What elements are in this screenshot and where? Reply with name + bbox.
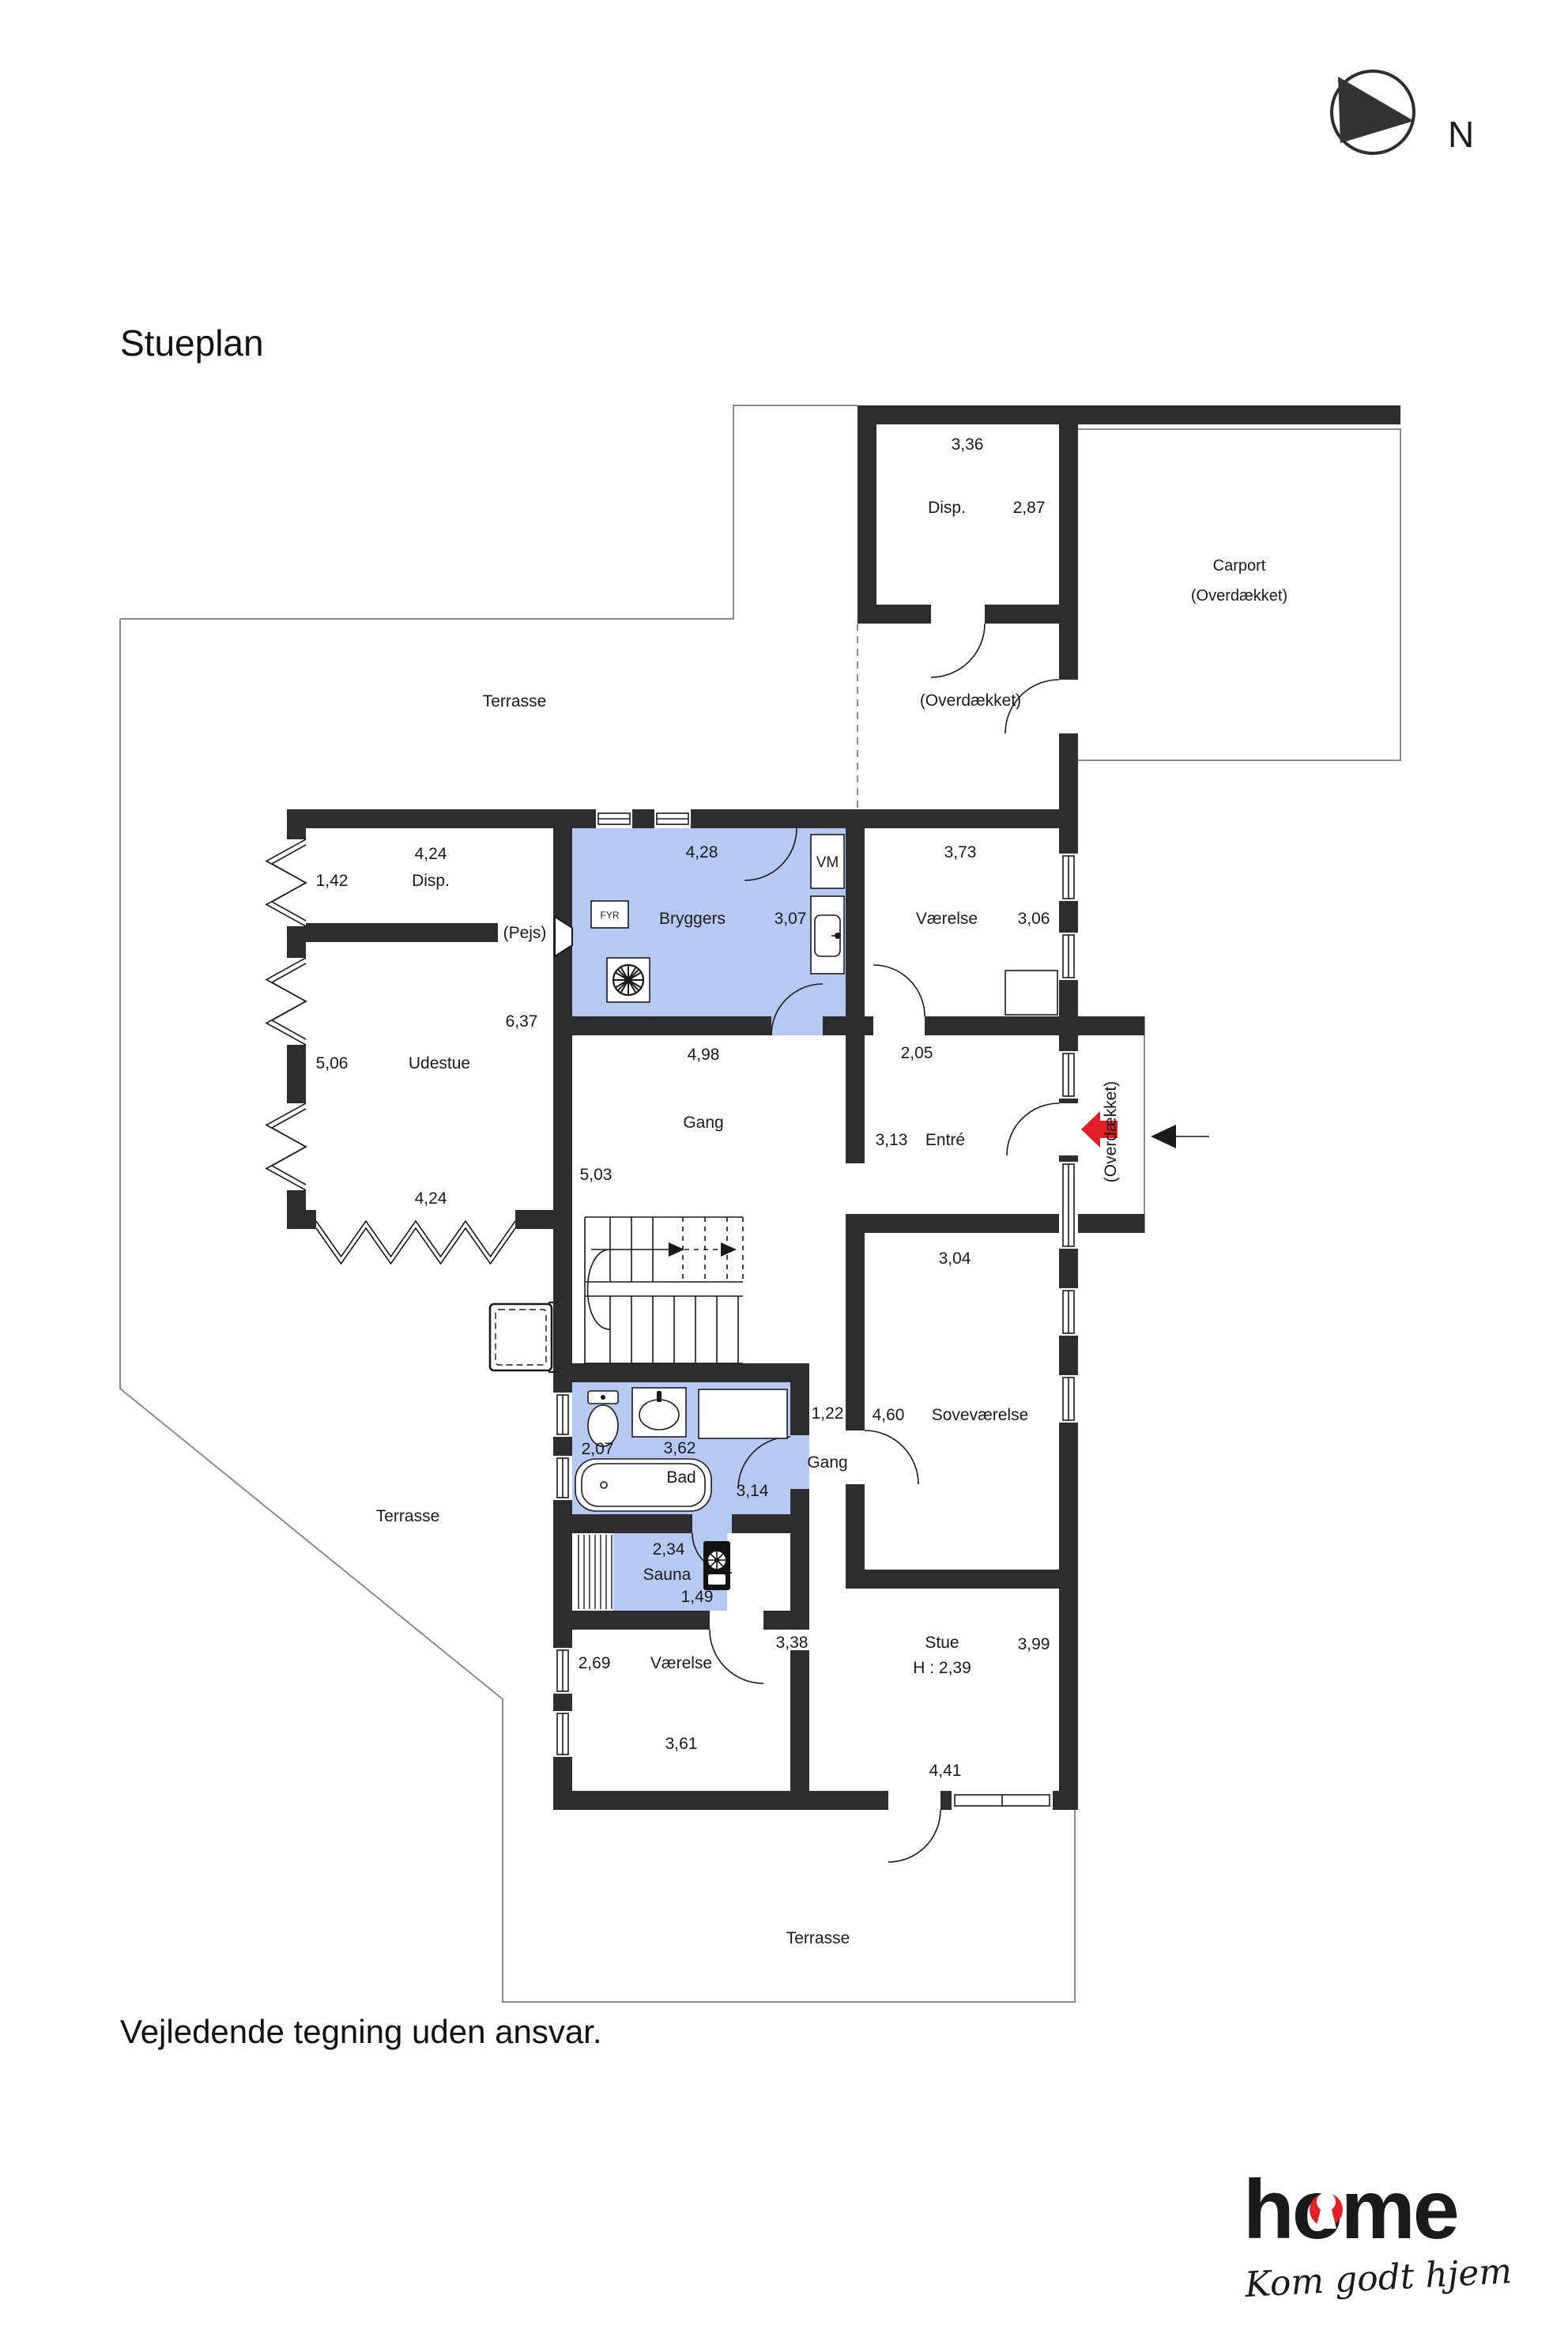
entre-width: 3,13 xyxy=(876,1131,908,1149)
door-arc xyxy=(873,965,925,1016)
window-icon xyxy=(1059,1288,1078,1336)
gang-depth: 5,03 xyxy=(580,1166,612,1184)
gang-width: 4,98 xyxy=(688,1046,720,1064)
sauna-door-fill xyxy=(692,1514,732,1533)
sauna-door-dim: 1,49 xyxy=(681,1588,714,1606)
furnace-icon: FYR xyxy=(591,901,628,928)
sovevaerelse-depth: 4,60 xyxy=(873,1406,905,1424)
vaerelse-bottom-width: 3,61 xyxy=(665,1735,698,1753)
compass-icon: N xyxy=(1332,71,1474,155)
terrace-outlines xyxy=(120,405,1400,2002)
disp-left-width: 4,24 xyxy=(415,845,447,863)
window-icon xyxy=(1059,1375,1078,1423)
accordion-window-icon xyxy=(272,1109,306,1185)
stue-width: 4,41 xyxy=(929,1762,962,1780)
stairs-icon xyxy=(585,1217,743,1363)
udestue-depth: 5,06 xyxy=(316,1054,349,1072)
bryggers-width: 4,28 xyxy=(686,843,718,861)
fan-icon xyxy=(607,958,650,1002)
vaerelse-top-depth: 3,06 xyxy=(1018,910,1050,928)
vaerelse-top-label: Værelse xyxy=(916,910,978,928)
window-icon xyxy=(553,1393,572,1437)
direction-arrow-icon xyxy=(1151,1125,1209,1148)
window-icon xyxy=(596,809,632,828)
sink-icon xyxy=(632,1388,686,1437)
door-arc xyxy=(865,1430,918,1484)
entre-label: Entré xyxy=(925,1131,965,1149)
washing-machine-label: VM xyxy=(816,854,839,871)
door-arc xyxy=(888,1810,940,1862)
disp-left-label: Disp. xyxy=(412,872,450,890)
utility-sink-icon xyxy=(811,896,844,974)
disclaimer-text: Vejledende tegning uden ansvar. xyxy=(120,2013,602,2050)
accordion-window-icon xyxy=(272,963,306,1039)
pejs-label: (Pejs) xyxy=(503,924,547,942)
carport-label: Carport xyxy=(1213,557,1266,575)
gang-label: Gang xyxy=(683,1114,723,1132)
furnace-label: FYR xyxy=(601,910,620,921)
bad-depth: 2,07 xyxy=(582,1440,614,1458)
home-logo: home Kom godt hjem xyxy=(1243,2163,1513,2305)
stue-ceiling: H : 2,39 xyxy=(913,1659,971,1677)
window-icon xyxy=(1059,1051,1078,1099)
stue-east-dim: 3,99 xyxy=(1018,1635,1050,1653)
udestue-width-bottom: 4,24 xyxy=(415,1189,447,1208)
terrace-top-outline xyxy=(120,405,857,619)
brand-tagline: Kom godt hjem xyxy=(1243,2251,1513,2305)
udestue-east-dim: 6,37 xyxy=(506,1012,538,1031)
udestue-label: Udestue xyxy=(409,1054,470,1072)
sovevaerelse-width: 3,04 xyxy=(939,1249,971,1268)
window-icon xyxy=(654,809,691,828)
floorplan-page: N Stueplan xyxy=(0,0,1568,2352)
terrasse-bottom-label: Terrasse xyxy=(786,1929,850,1947)
terrasse-left-label: Terrasse xyxy=(376,1507,440,1525)
stue-label: Stue xyxy=(925,1634,959,1652)
hot-tub-icon xyxy=(490,1302,558,1372)
stue-door-dim: 3,38 xyxy=(776,1634,808,1652)
accordion-window-icon xyxy=(266,1103,306,1190)
accordion-window-icon xyxy=(272,845,306,921)
overdaekket-top-label: (Overdækket) xyxy=(920,692,1021,710)
window-icon xyxy=(1059,1162,1078,1249)
carport-note: (Overdækket) xyxy=(1191,587,1287,605)
vaerelse-bottom-label: Værelse xyxy=(650,1654,712,1672)
washing-machine-icon: VM xyxy=(811,835,844,888)
sovevaerelse-label: Soveværelse xyxy=(932,1406,1029,1424)
bryggers-depth: 3,07 xyxy=(775,910,807,928)
door-arc xyxy=(931,624,985,677)
vaerelse-top-width: 3,73 xyxy=(944,843,977,861)
folding-door-icon xyxy=(316,1228,515,1264)
window-icon xyxy=(553,1711,572,1757)
bad-east-dim: 3,14 xyxy=(737,1482,769,1500)
porch-label: (Overdækket) xyxy=(1102,1081,1120,1182)
door-arc xyxy=(710,1630,763,1683)
wardrobe xyxy=(1005,971,1057,1015)
sauna-width: 2,34 xyxy=(653,1540,685,1559)
toilet-icon xyxy=(588,1391,618,1446)
brand-name: home xyxy=(1243,2163,1457,2256)
sauna-heater-icon xyxy=(703,1541,730,1590)
gang2-width: 1,22 xyxy=(812,1404,844,1423)
gang2-label: Gang xyxy=(807,1453,847,1472)
disp-top-width: 3,36 xyxy=(952,435,984,454)
accordion-window-icon xyxy=(266,839,306,926)
sauna-label: Sauna xyxy=(643,1566,692,1584)
accordion-window-icon xyxy=(266,958,306,1045)
folding-door-icon xyxy=(316,1221,515,1257)
bad-label: Bad xyxy=(666,1468,695,1487)
window-icon xyxy=(1059,933,1078,980)
window-icon xyxy=(553,1456,572,1500)
sauna-benches xyxy=(579,1535,612,1609)
window-icon xyxy=(952,1791,1053,1810)
bad-width: 3,62 xyxy=(664,1439,696,1457)
window-icon xyxy=(1059,854,1078,901)
counter xyxy=(699,1389,787,1438)
vaerelse-bottom-depth: 2,69 xyxy=(579,1654,611,1672)
compass-north-label: N xyxy=(1448,114,1474,155)
bryggers-south-door-fill xyxy=(771,1016,823,1035)
disp-top-label: Disp. xyxy=(928,499,966,517)
door-arc xyxy=(1007,1103,1059,1155)
hall-width: 2,05 xyxy=(901,1044,933,1062)
disp-top-depth: 2,87 xyxy=(1013,499,1046,517)
page-title: Stueplan xyxy=(120,322,264,364)
bryggers-label: Bryggers xyxy=(659,910,726,928)
entre-door-opening xyxy=(1059,1103,1078,1155)
walls xyxy=(287,405,1400,1810)
window-icon xyxy=(553,1648,572,1694)
disp-left-depth: 1,42 xyxy=(316,872,349,890)
terrasse-top-label: Terrasse xyxy=(483,692,547,710)
